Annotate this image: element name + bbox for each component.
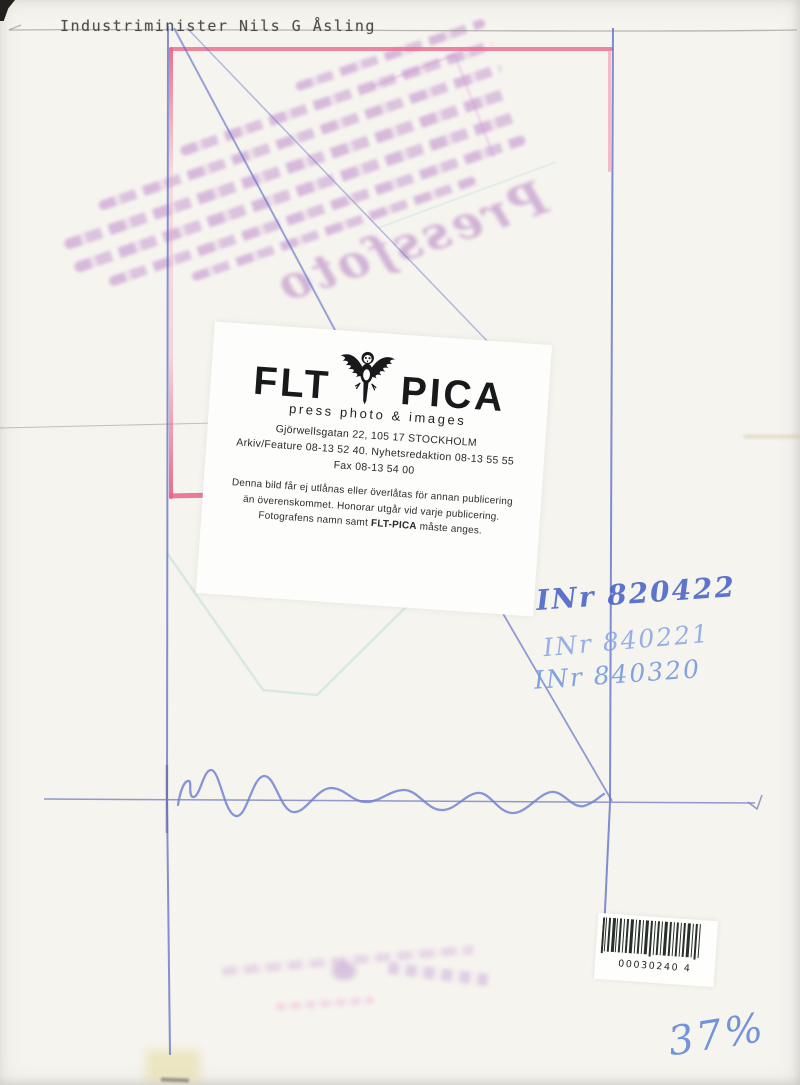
crease-line bbox=[744, 435, 800, 438]
ink-blob bbox=[332, 962, 356, 980]
barcode-sticker: 00030240 4 bbox=[594, 913, 718, 987]
terms-brand-name: FLT-PICA bbox=[371, 518, 418, 532]
brand-flt-text: FLT bbox=[252, 361, 332, 406]
bird-logo-icon bbox=[333, 342, 399, 412]
crop-mark-top bbox=[170, 47, 613, 51]
pen-squiggle bbox=[178, 770, 604, 816]
barcode-icon bbox=[601, 917, 703, 960]
handwritten-archive-number-1: INr 820422 bbox=[535, 570, 737, 617]
handwritten-scale-note: 37% bbox=[665, 1005, 769, 1066]
barcode-digits: 00030240 4 bbox=[600, 957, 710, 976]
brand-pica-text: PICA bbox=[399, 371, 507, 418]
pen-vertical-dark-segment bbox=[166, 765, 169, 833]
crop-mark-left bbox=[169, 47, 173, 499]
photo-back-scan: Pressfoto Industriminister Nils G Åsling bbox=[0, 0, 800, 1085]
crop-mark-right bbox=[608, 50, 611, 172]
scan-corner-mark bbox=[0, 0, 15, 21]
faded-stamp-residue bbox=[388, 962, 489, 986]
terms-suffix: måste anges. bbox=[416, 521, 482, 537]
typewritten-caption: Industriminister Nils G Åsling bbox=[60, 17, 376, 35]
faded-stamp-residue bbox=[276, 997, 374, 1011]
agency-label-sticker: FLT PICA bbox=[196, 322, 552, 617]
pencil-tick bbox=[9, 25, 21, 30]
pen-horizontal-rule bbox=[44, 799, 755, 803]
pen-rule-end-hook bbox=[748, 795, 762, 809]
